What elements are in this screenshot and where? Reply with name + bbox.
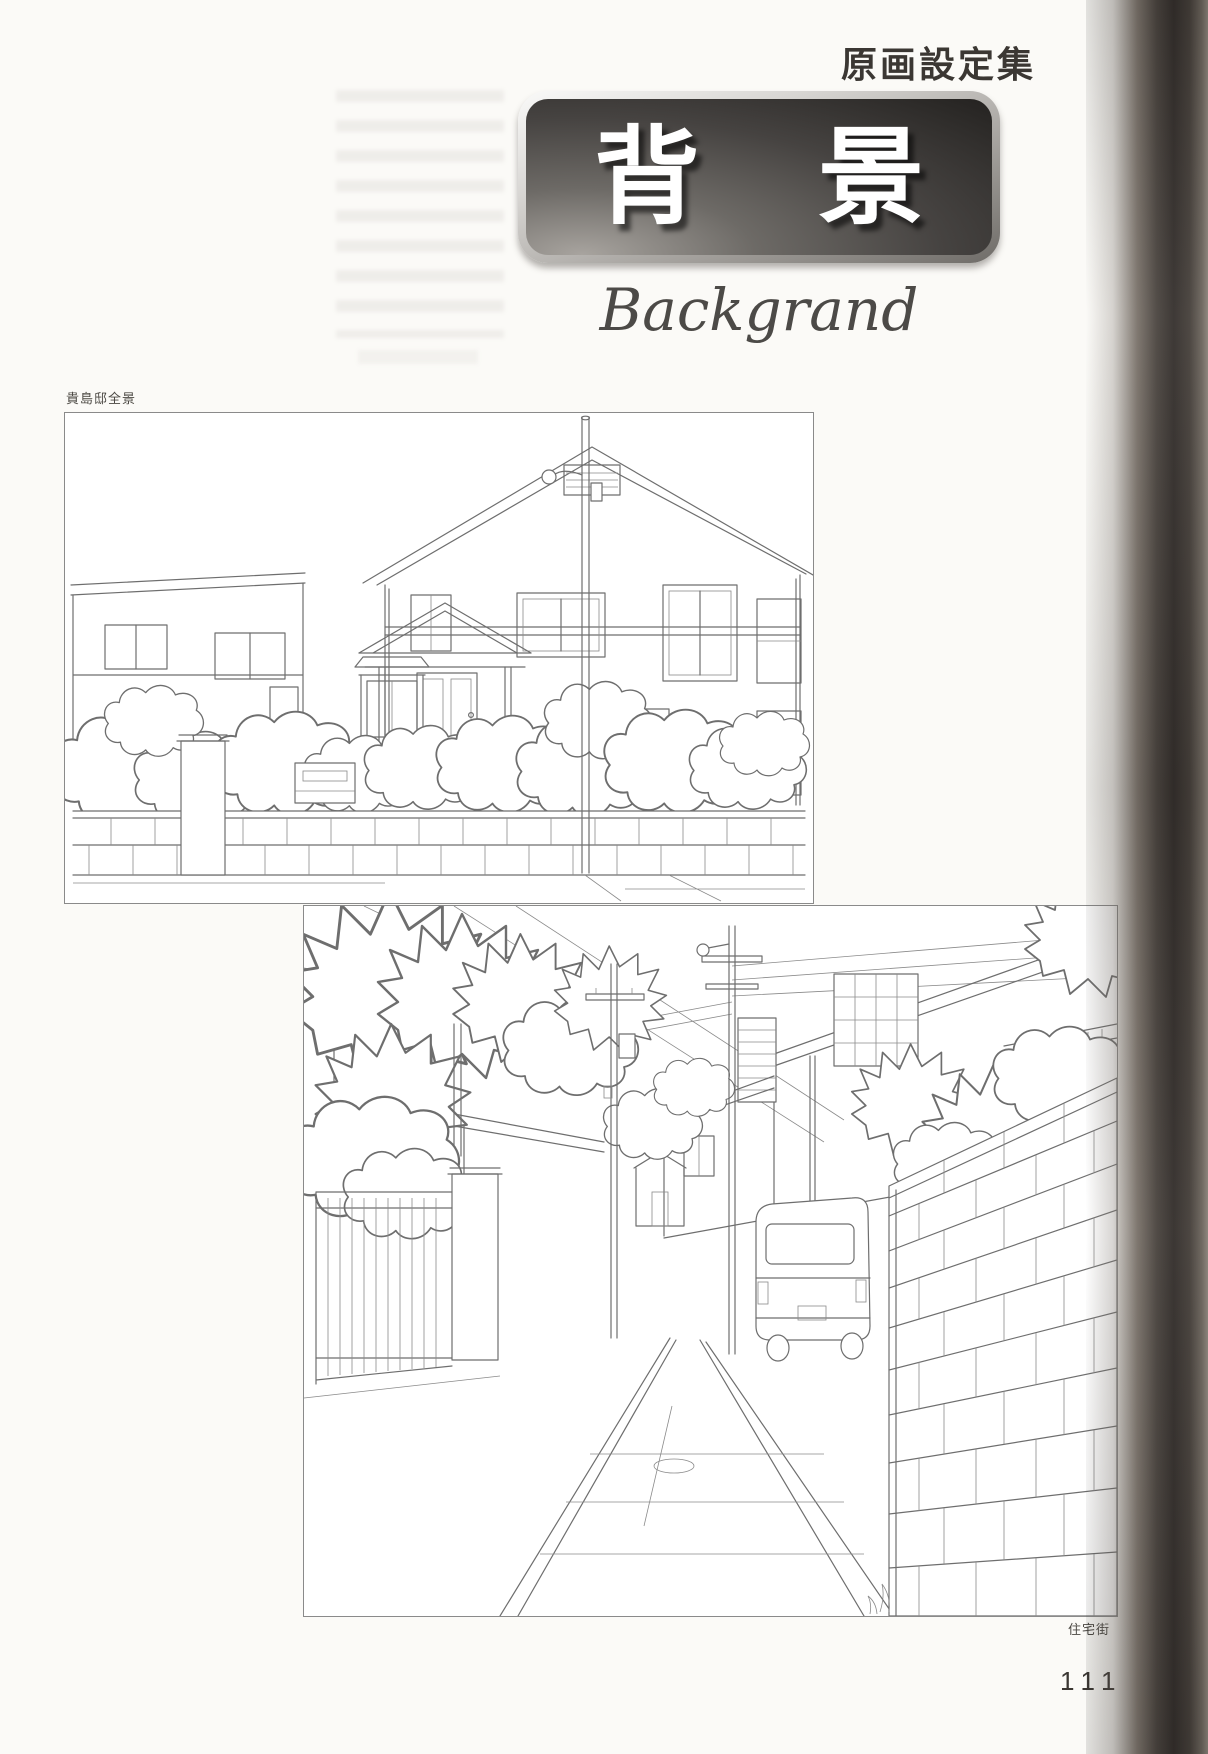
street-line-art <box>304 906 1117 1616</box>
parked-van <box>756 1198 870 1361</box>
title-banner: 背景 <box>518 91 1000 263</box>
binding-edge <box>1086 0 1208 1754</box>
street <box>500 1338 894 1616</box>
figure-caption-house: 貴島邸全景 <box>66 388 136 407</box>
hedges <box>65 682 809 824</box>
figure-house-exterior <box>64 412 814 904</box>
title-banner-plate: 背景 <box>526 99 992 255</box>
ground-lines <box>73 875 805 901</box>
page-title: 背景 <box>476 124 1042 230</box>
collection-header-label: 原画設定集 <box>841 36 1036 88</box>
bleed-through-text <box>358 350 478 364</box>
page-subtitle: Backgrand <box>518 276 1000 344</box>
figure-residential-street <box>303 905 1118 1617</box>
house-line-art <box>65 413 813 903</box>
